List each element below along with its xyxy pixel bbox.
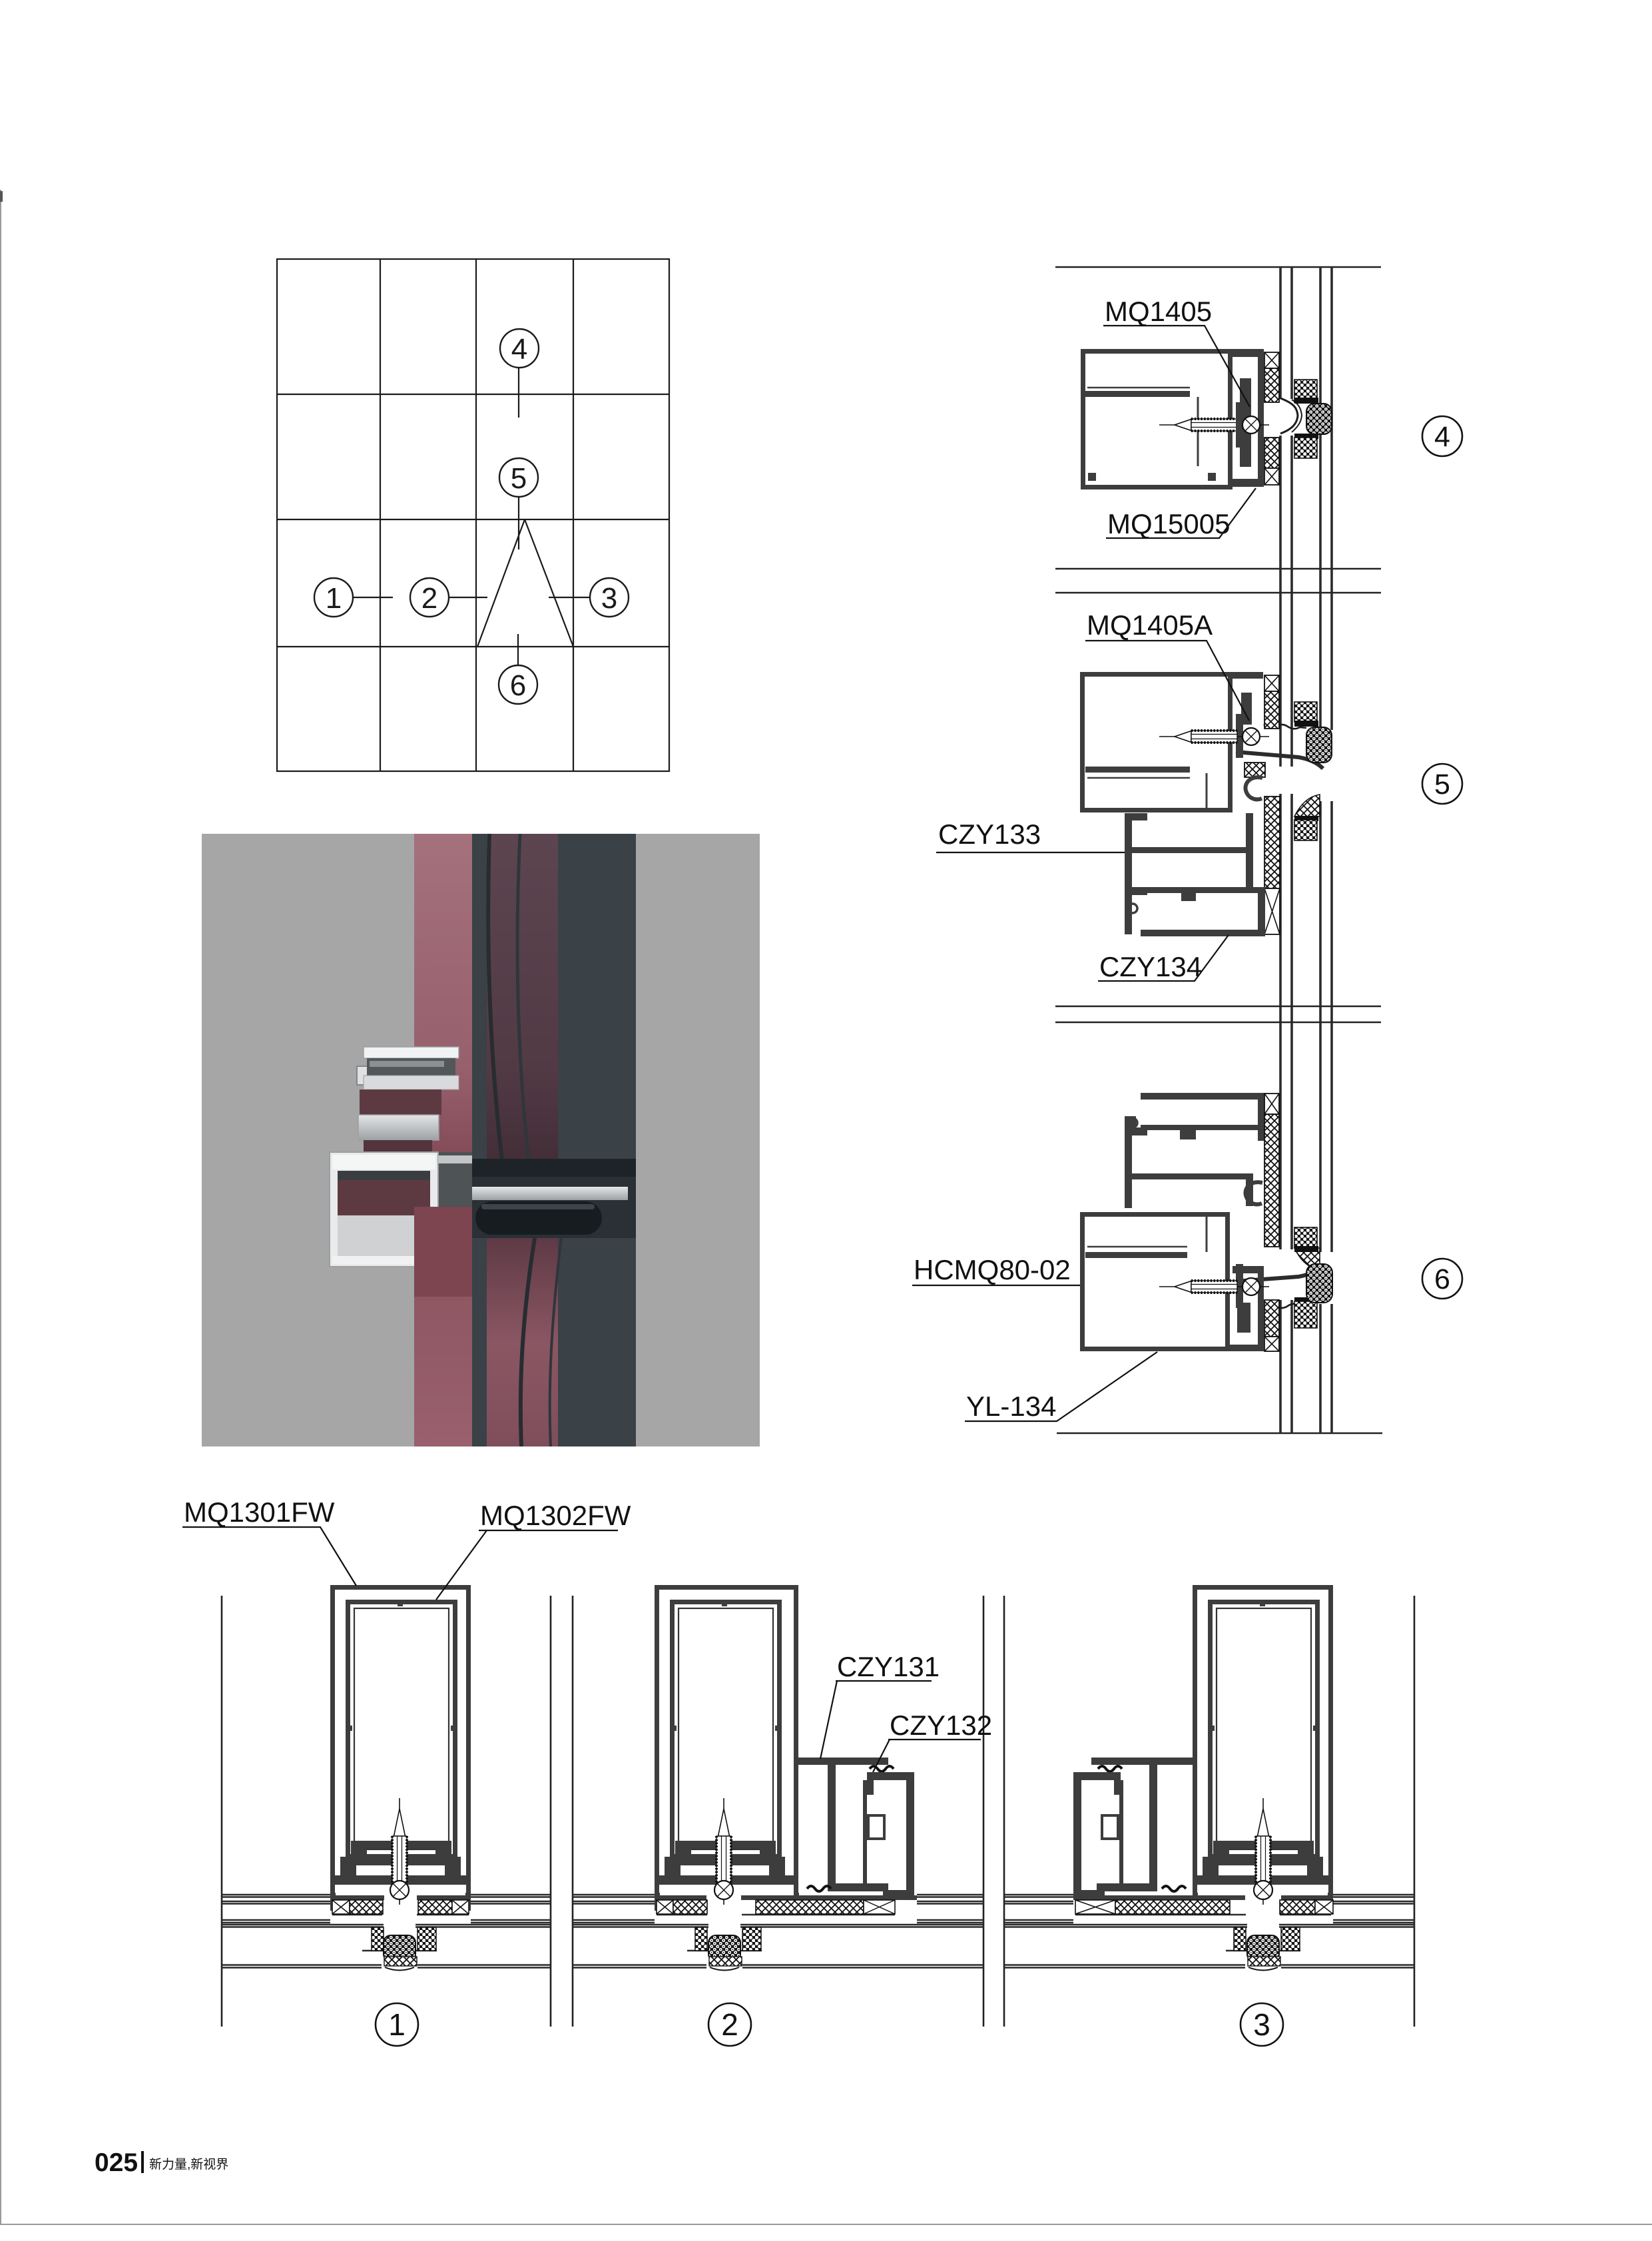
svg-text:MQ1405A: MQ1405A (1087, 609, 1213, 641)
svg-text:HCMQ80-02: HCMQ80-02 (914, 1254, 1071, 1285)
svg-text:YL-134: YL-134 (966, 1391, 1056, 1422)
svg-text:6: 6 (1434, 1263, 1450, 1295)
svg-text:CZY133: CZY133 (938, 818, 1041, 850)
svg-text:3: 3 (601, 582, 617, 615)
svg-text:3: 3 (1253, 2007, 1270, 2042)
svg-text:4: 4 (511, 333, 527, 366)
svg-text:5: 5 (1434, 769, 1450, 800)
svg-text:CZY134: CZY134 (1099, 951, 1202, 982)
svg-text:4: 4 (1434, 421, 1450, 453)
svg-text:1: 1 (388, 2007, 406, 2042)
svg-text:MQ15005: MQ15005 (1107, 508, 1230, 539)
svg-text:1: 1 (326, 582, 342, 615)
svg-text:2: 2 (721, 2007, 738, 2042)
svg-text:5: 5 (511, 462, 527, 495)
svg-text:MQ1405: MQ1405 (1105, 296, 1212, 327)
svg-text:MQ1302FW: MQ1302FW (480, 1500, 631, 1531)
svg-text:MQ1301FW: MQ1301FW (184, 1496, 335, 1528)
svg-text:CZY131: CZY131 (837, 1651, 940, 1682)
svg-text:CZY132: CZY132 (890, 1710, 992, 1741)
svg-text:2: 2 (421, 582, 437, 615)
svg-text:6: 6 (510, 669, 526, 702)
